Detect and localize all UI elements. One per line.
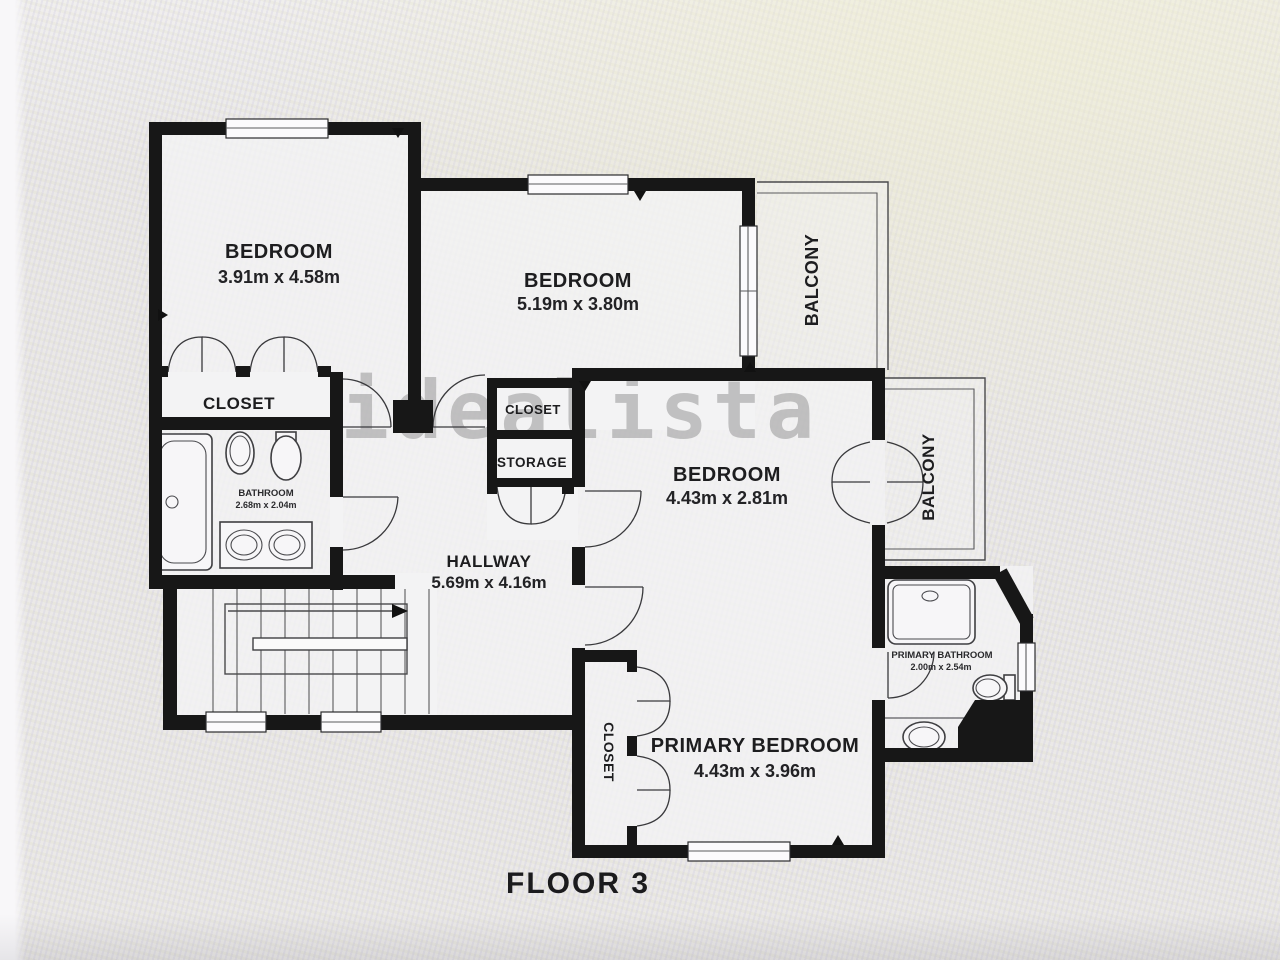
closet-bedroom1-label: CLOSET (203, 394, 275, 413)
bathtub (154, 434, 212, 570)
bedroom3-dims: 4.43m x 2.81m (666, 488, 788, 508)
primary-bathroom-dims: 2.00m x 2.54m (910, 662, 971, 672)
floor-title: FLOOR 3 (506, 867, 650, 900)
primary-bathroom-label: PRIMARY BATHROOM (891, 650, 992, 661)
balcony-right-label: BALCONY (919, 433, 938, 521)
bathroom-dims: 2.68m x 2.04m (235, 500, 296, 510)
bedroom2-window (528, 175, 628, 194)
primary-bedroom-dims: 4.43m x 3.96m (694, 761, 816, 781)
primary-bedroom-window (688, 842, 790, 861)
bedroom2-balcony-window (740, 226, 757, 356)
stairs-window-1 (206, 712, 266, 732)
shower-tub (888, 580, 975, 644)
bathroom-label: BATHROOM (238, 488, 293, 499)
primary-bedroom-label: PRIMARY BEDROOM (651, 735, 860, 757)
balcony-top-label: BALCONY (802, 234, 822, 327)
storage-label: STORAGE (497, 455, 567, 470)
bedroom2-label: BEDROOM (524, 270, 632, 292)
bedroom3-label: BEDROOM (673, 464, 781, 486)
hallway-dims: 5.69m x 4.16m (431, 573, 546, 592)
hallway-label: HALLWAY (446, 552, 531, 571)
bidet (271, 436, 301, 480)
bedroom1-label: BEDROOM (225, 241, 333, 263)
primary-bathroom-window (1018, 643, 1035, 691)
photo-bottom-shade (0, 914, 1280, 960)
closet-hall-label: CLOSET (505, 402, 561, 417)
bedroom2-dims: 5.19m x 3.80m (517, 294, 639, 314)
stairs-window-2 (321, 712, 381, 732)
bedroom1-window (226, 119, 328, 138)
double-sink-vanity (220, 522, 312, 568)
bedroom1-dims: 3.91m x 4.58m (218, 267, 340, 287)
floorplan-drawing: idealista (0, 0, 1280, 960)
floorplan-photo: idealista (0, 0, 1280, 960)
closet-primary-label: CLOSET (601, 722, 617, 782)
